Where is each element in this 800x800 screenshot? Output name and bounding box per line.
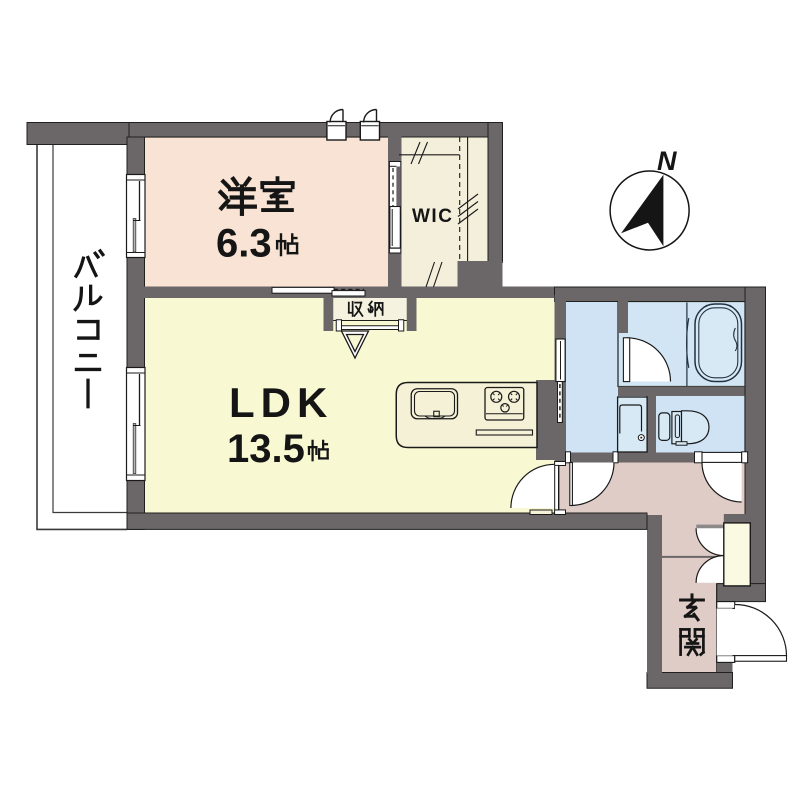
svg-text:13.5: 13.5 bbox=[227, 427, 305, 471]
svg-text:WIC: WIC bbox=[412, 206, 453, 227]
svg-text:N: N bbox=[657, 146, 677, 176]
svg-text:LDK: LDK bbox=[229, 379, 333, 426]
svg-text:6.3: 6.3 bbox=[216, 222, 272, 266]
